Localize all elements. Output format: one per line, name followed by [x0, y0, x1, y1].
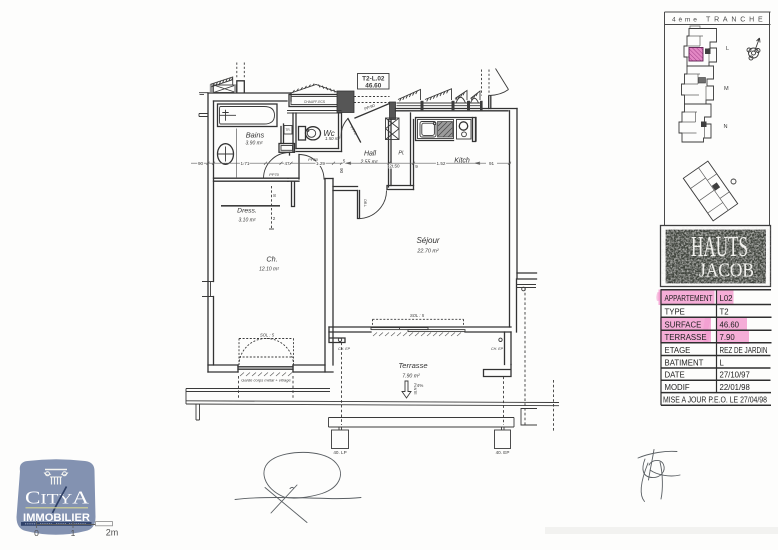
- svg-text:Ch.: Ch.: [266, 255, 277, 264]
- svg-text:47: 47: [284, 161, 290, 166]
- svg-text:4%: 4%: [417, 383, 424, 388]
- svg-text:3.90 m²: 3.90 m²: [246, 141, 263, 147]
- svg-text:M: M: [724, 86, 729, 92]
- svg-text:90: 90: [339, 168, 344, 174]
- svg-text:TERRASSE: TERRASSE: [665, 333, 707, 342]
- svg-text:TR.: TR.: [285, 128, 290, 132]
- svg-text:1.29: 1.29: [316, 161, 325, 166]
- svg-text:2: 2: [273, 216, 276, 221]
- svg-text:MISE A JOUR P.E.O. LE 27/04/98: MISE A JOUR P.E.O. LE 27/04/98: [663, 396, 767, 405]
- svg-text:Bains: Bains: [246, 131, 265, 140]
- svg-text:TRANCHE: TRANCHE: [706, 17, 766, 24]
- svg-text:REZ DE JARDIN: REZ DE JARDIN: [720, 346, 768, 355]
- svg-text:JACOB: JACOB: [699, 260, 754, 282]
- svg-text:TYPE: TYPE: [665, 308, 685, 317]
- svg-text:APPARTEMENT: APPARTEMENT: [665, 294, 713, 303]
- svg-text:5: 5: [343, 159, 346, 164]
- svg-text:HAUTS: HAUTS: [691, 231, 748, 263]
- svg-text:BATIMENT: BATIMENT: [665, 358, 704, 367]
- svg-text:CH. EP: CH. EP: [338, 347, 351, 351]
- svg-text:7.90: 7.90: [720, 333, 736, 342]
- svg-text:ETAGE: ETAGE: [665, 346, 691, 355]
- svg-text:1.52: 1.52: [437, 161, 446, 166]
- svg-text:40. LP: 40. LP: [333, 450, 346, 455]
- svg-text:OB.L: OB.L: [363, 199, 367, 207]
- svg-text:DATE: DATE: [665, 371, 685, 380]
- svg-text:46.60: 46.60: [720, 321, 740, 330]
- svg-text:L02: L02: [720, 294, 733, 303]
- svg-text:90: 90: [198, 161, 204, 166]
- svg-text:L: L: [726, 46, 729, 52]
- svg-text:Terrasse: Terrasse: [398, 361, 427, 370]
- svg-text:1.50 m²: 1.50 m²: [325, 136, 340, 141]
- svg-text:Dress.: Dress.: [237, 208, 257, 215]
- svg-text:PP70: PP70: [269, 172, 280, 177]
- svg-text:Garde corps métal + vitrage: Garde corps métal + vitrage: [241, 378, 291, 383]
- svg-text:40. EP: 40. EP: [496, 450, 510, 455]
- svg-text:Pl.: Pl.: [398, 151, 404, 157]
- svg-text:MODIF: MODIF: [665, 383, 690, 392]
- svg-text:12.10 m²: 12.10 m²: [259, 267, 279, 273]
- svg-text:L: L: [720, 358, 725, 367]
- svg-text:Hall: Hall: [364, 151, 377, 158]
- svg-text:9: 9: [415, 164, 418, 169]
- svg-text:SURFACE: SURFACE: [665, 321, 702, 330]
- svg-text:22.70 m²: 22.70 m²: [416, 249, 438, 255]
- svg-text:1: 1: [71, 528, 76, 538]
- svg-text:Séjour: Séjour: [416, 236, 439, 245]
- svg-text:4ème: 4ème: [672, 17, 700, 24]
- svg-text:1.71: 1.71: [241, 161, 250, 166]
- svg-text:T2: T2: [720, 308, 729, 317]
- svg-text:7.90 m²: 7.90 m²: [402, 374, 420, 380]
- svg-text:2t.50: 2t.50: [389, 163, 400, 168]
- svg-text:SOL : 5: SOL : 5: [260, 333, 275, 338]
- svg-text:22/01/98: 22/01/98: [720, 383, 750, 392]
- svg-text:SOL : 5: SOL : 5: [410, 313, 425, 318]
- svg-text:91: 91: [489, 161, 495, 166]
- svg-text:3.10 m²: 3.10 m²: [239, 218, 256, 224]
- svg-text:0: 0: [34, 528, 39, 538]
- svg-text:2.55 m²: 2.55 m²: [360, 160, 378, 166]
- svg-text:CHAUFF-ECS: CHAUFF-ECS: [304, 100, 326, 104]
- svg-text:2m: 2m: [106, 528, 119, 538]
- svg-text:46.60: 46.60: [365, 83, 381, 90]
- svg-text:27/10/97: 27/10/97: [720, 371, 750, 380]
- svg-text:N: N: [724, 124, 728, 130]
- svg-text:CH. EP: CH. EP: [491, 347, 504, 351]
- svg-text:8: 8: [273, 193, 276, 198]
